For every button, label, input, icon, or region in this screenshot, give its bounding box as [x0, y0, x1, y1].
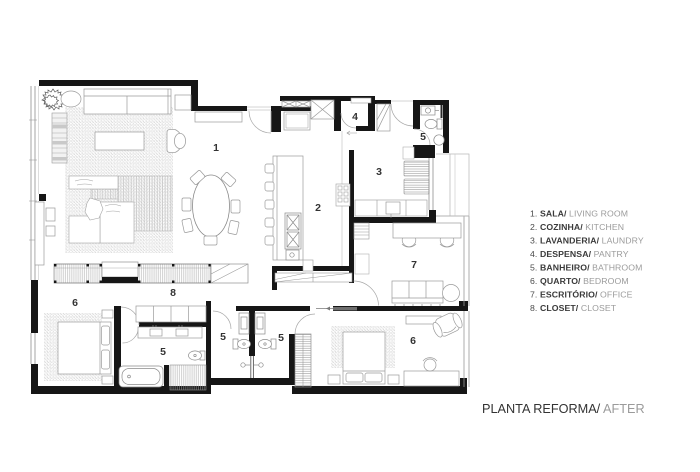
svg-text:7. ESCRITÓRIO/ OFFICE: 7. ESCRITÓRIO/ OFFICE [530, 289, 633, 300]
svg-text:5. BANHEIRO/ BATHROOM: 5. BANHEIRO/ BATHROOM [530, 263, 643, 273]
svg-text:4. DESPENSA/ PANTRY: 4. DESPENSA/ PANTRY [530, 249, 629, 259]
svg-text:PLANTA REFORMA/ AFTER: PLANTA REFORMA/ AFTER [482, 402, 645, 416]
svg-text:1: 1 [213, 142, 219, 154]
svg-text:8. CLOSET/ CLOSET: 8. CLOSET/ CLOSET [530, 303, 617, 313]
svg-text:5: 5 [160, 346, 166, 358]
svg-text:3. LAVANDERIA/ LAUNDRY: 3. LAVANDERIA/ LAUNDRY [530, 236, 644, 246]
svg-text:5: 5 [220, 331, 226, 343]
svg-text:3: 3 [376, 166, 382, 178]
svg-text:1. SALA/ LIVING ROOM: 1. SALA/ LIVING ROOM [530, 209, 628, 219]
svg-text:2: 2 [315, 202, 321, 214]
svg-text:6: 6 [72, 297, 78, 309]
svg-text:7: 7 [411, 259, 417, 271]
svg-text:5: 5 [278, 332, 284, 344]
svg-text:6. QUARTO/ BEDROOM: 6. QUARTO/ BEDROOM [530, 276, 629, 286]
svg-text:4: 4 [352, 111, 358, 123]
svg-text:6: 6 [410, 335, 416, 347]
svg-text:2. COZINHA/ KITCHEN: 2. COZINHA/ KITCHEN [530, 222, 624, 232]
svg-text:8: 8 [170, 287, 176, 299]
svg-text:5: 5 [420, 131, 426, 143]
